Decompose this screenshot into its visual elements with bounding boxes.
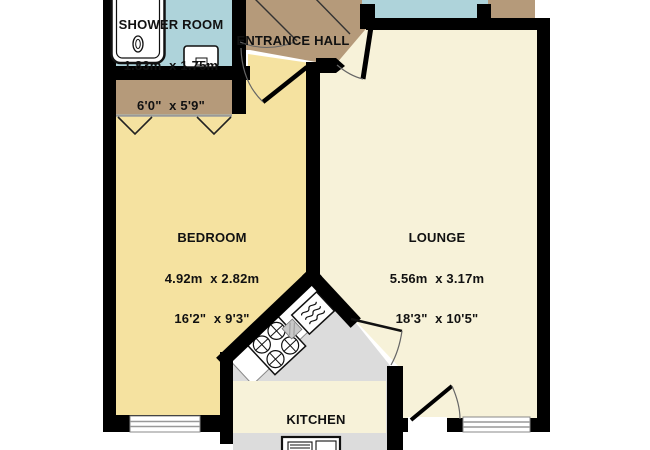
room-name: KITCHEN bbox=[269, 413, 364, 427]
entrance-hall-label: ENTRANCE HALL bbox=[236, 7, 349, 75]
room-size-metric: 5.56m x 3.17m bbox=[390, 272, 485, 286]
bedroom-window bbox=[130, 416, 200, 432]
room-name: BEDROOM bbox=[165, 231, 260, 245]
kitchen-label: KITCHEN 2.82m x 2.30m 9'3" x 7'7" bbox=[269, 386, 364, 450]
room-size-metric: 4.92m x 2.82m bbox=[165, 272, 260, 286]
room-size-imperial: 6'0" x 5'9" bbox=[119, 99, 224, 113]
room-size-imperial: 18'3" x 10'5" bbox=[390, 312, 485, 326]
lounge-label: LOUNGE 5.56m x 3.17m 18'3" x 10'5" bbox=[390, 204, 485, 353]
room-name: LOUNGE bbox=[390, 231, 485, 245]
room-size-metric: 1.83m x 1.75m bbox=[119, 59, 224, 73]
room-name: ENTRANCE HALL bbox=[236, 34, 349, 48]
lounge-window bbox=[463, 417, 530, 432]
floor-plan: SHOWER ROOM 1.83m x 1.75m 6'0" x 5'9" EN… bbox=[0, 0, 650, 450]
bedroom-label: BEDROOM 4.92m x 2.82m 16'2" x 9'3" bbox=[165, 204, 260, 353]
shower-room-label: SHOWER ROOM 1.83m x 1.75m 6'0" x 5'9" bbox=[119, 0, 224, 140]
room-name: SHOWER ROOM bbox=[119, 18, 224, 32]
room-size-imperial: 16'2" x 9'3" bbox=[165, 312, 260, 326]
